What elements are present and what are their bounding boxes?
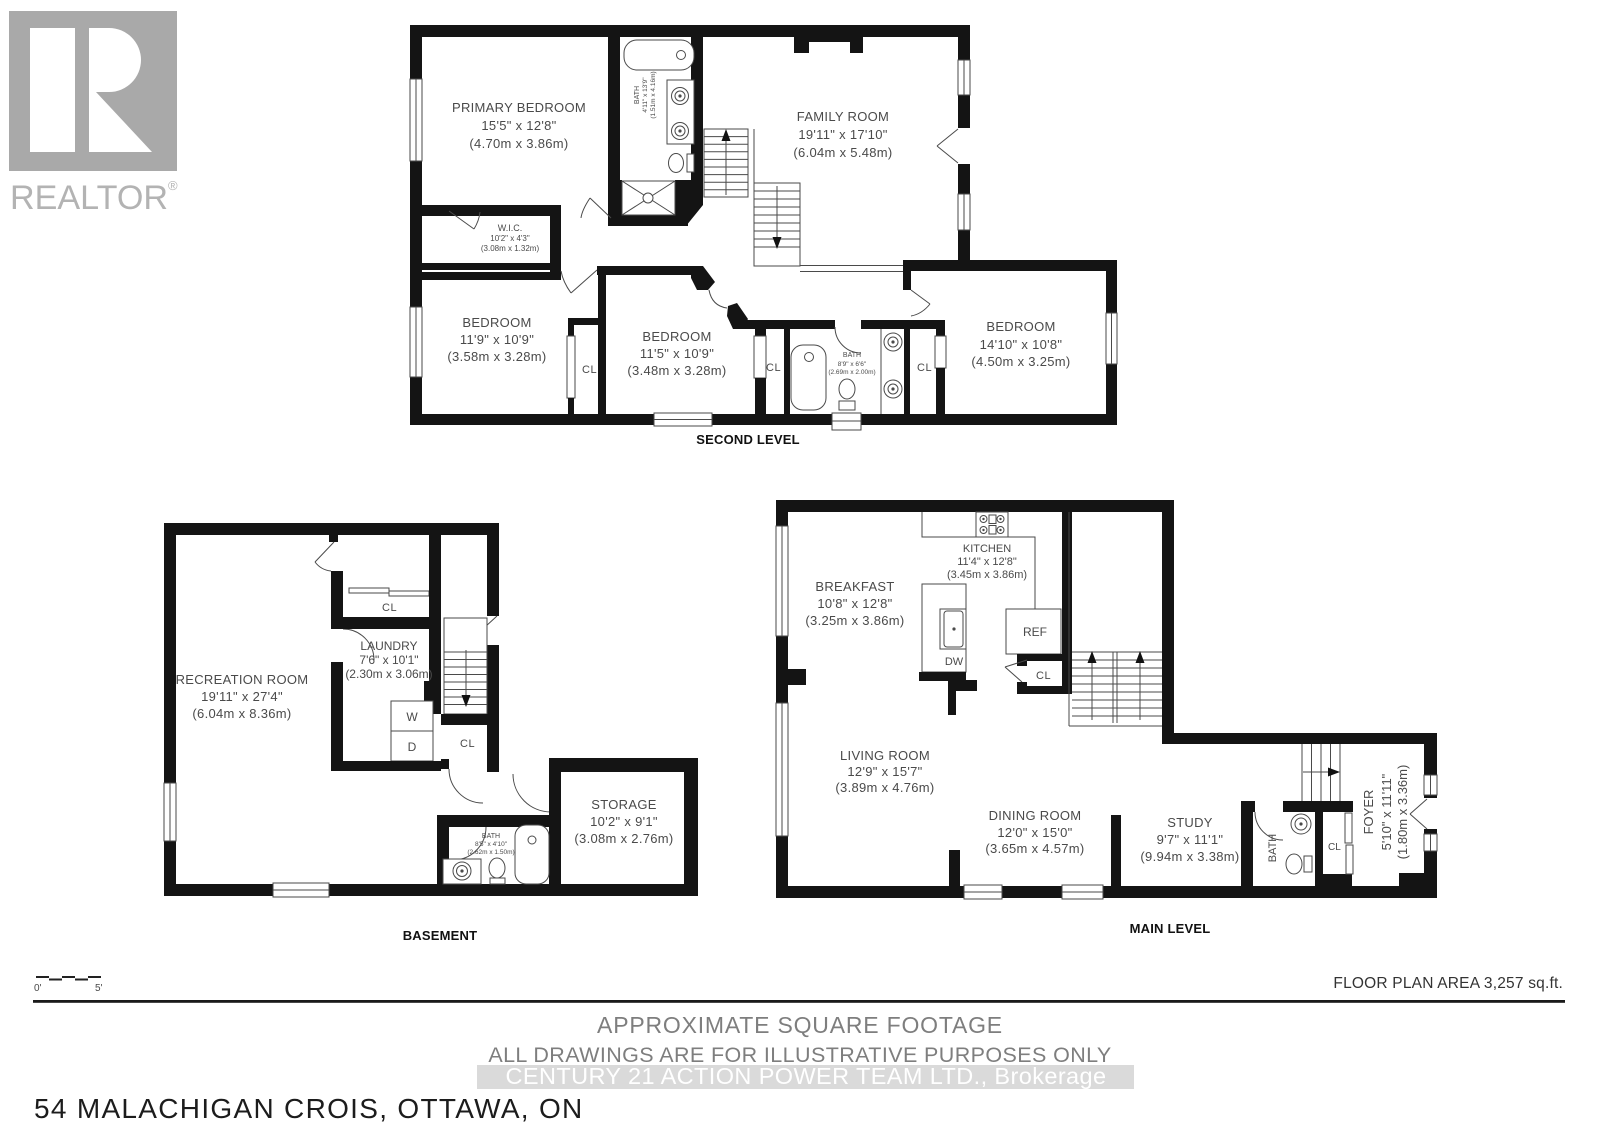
svg-text:10'2" x 9'1": 10'2" x 9'1" <box>590 814 658 829</box>
svg-text:8'5" x 4'10": 8'5" x 4'10" <box>475 841 508 848</box>
svg-text:(2.69m x 2.00m): (2.69m x 2.00m) <box>828 369 875 376</box>
svg-text:BEDROOM: BEDROOM <box>986 319 1055 334</box>
svg-text:CL: CL <box>582 364 597 376</box>
svg-text:®: ® <box>168 178 178 193</box>
svg-text:BATH: BATH <box>843 352 861 359</box>
svg-text:REALTOR: REALTOR <box>10 179 168 217</box>
svg-text:15'5" x 12'8": 15'5" x 12'8" <box>481 118 556 133</box>
svg-text:STORAGE: STORAGE <box>591 797 656 812</box>
svg-text:9'7" x 11'1": 9'7" x 11'1" <box>1157 832 1224 847</box>
svg-text:DW: DW <box>945 656 964 668</box>
svg-text:19'11" x 27'4": 19'11" x 27'4" <box>201 689 283 704</box>
svg-text:12'9" x 15'7": 12'9" x 15'7" <box>847 764 922 779</box>
svg-text:5'10" x 11'11": 5'10" x 11'11" <box>1379 773 1394 850</box>
svg-text:LAUNDRY: LAUNDRY <box>360 639 417 653</box>
svg-text:54 MALACHIGAN CROIS, OTTAWA, O: 54 MALACHIGAN CROIS, OTTAWA, ON <box>34 1093 584 1124</box>
svg-text:(3.48m x 3.28m): (3.48m x 3.28m) <box>627 363 726 378</box>
svg-text:14'10" x 10'8": 14'10" x 10'8" <box>980 337 1063 352</box>
svg-text:CL: CL <box>1328 842 1341 853</box>
svg-text:(2.30m x 3.06m): (2.30m x 3.06m) <box>345 667 432 681</box>
svg-text:BATH: BATH <box>634 86 641 104</box>
svg-text:8'9" x 6'6": 8'9" x 6'6" <box>838 361 867 368</box>
svg-text:(3.25m x 3.86m): (3.25m x 3.86m) <box>805 613 904 628</box>
svg-text:CL: CL <box>1036 670 1051 682</box>
svg-text:(6.04m x 5.48m): (6.04m x 5.48m) <box>793 145 892 160</box>
svg-text:(3.08m x 2.76m): (3.08m x 2.76m) <box>574 831 673 846</box>
svg-text:CENTURY 21 ACTION POWER TEAM L: CENTURY 21 ACTION POWER TEAM LTD., Broke… <box>506 1063 1107 1089</box>
svg-text:W: W <box>406 710 418 724</box>
svg-text:0': 0' <box>34 983 42 994</box>
svg-text:10'2" x 4'3": 10'2" x 4'3" <box>490 234 530 243</box>
svg-text:REF: REF <box>1023 625 1047 639</box>
svg-text:BEDROOM: BEDROOM <box>462 315 531 330</box>
svg-text:RECREATION ROOM: RECREATION ROOM <box>176 672 309 687</box>
svg-text:BREAKFAST: BREAKFAST <box>815 579 894 594</box>
svg-text:(4.50m x 3.25m): (4.50m x 3.25m) <box>971 354 1070 369</box>
svg-text:W.I.C.: W.I.C. <box>498 223 523 233</box>
svg-text:4'11" x 13'9": 4'11" x 13'9" <box>642 77 649 113</box>
svg-text:MAIN LEVEL: MAIN LEVEL <box>1130 921 1211 936</box>
svg-text:KITCHEN: KITCHEN <box>963 543 1011 555</box>
svg-text:19'11" x 17'10": 19'11" x 17'10" <box>798 127 887 142</box>
svg-text:7'6" x 10'1": 7'6" x 10'1" <box>359 653 418 667</box>
svg-text:PRIMARY BEDROOM: PRIMARY BEDROOM <box>452 100 586 115</box>
svg-text:STUDY: STUDY <box>1167 815 1213 830</box>
svg-text:CL: CL <box>766 362 781 374</box>
svg-text:(1.80m x 3.36m): (1.80m x 3.36m) <box>1395 765 1410 860</box>
svg-text:(3.45m x 3.86m): (3.45m x 3.86m) <box>947 569 1027 581</box>
svg-text:(1.51m x 4.16m): (1.51m x 4.16m) <box>650 71 657 118</box>
svg-text:(3.58m x 3.28m): (3.58m x 3.28m) <box>447 349 546 364</box>
svg-text:(3.65m x 4.57m): (3.65m x 4.57m) <box>985 841 1084 856</box>
svg-text:(3.08m x 1.32m): (3.08m x 1.32m) <box>481 244 540 253</box>
svg-text:CL: CL <box>917 362 932 374</box>
svg-text:11'4" x 12'8": 11'4" x 12'8" <box>957 556 1017 568</box>
svg-text:BEDROOM: BEDROOM <box>642 329 711 344</box>
svg-text:APPROXIMATE SQUARE FOOTAGE: APPROXIMATE SQUARE FOOTAGE <box>597 1012 1003 1038</box>
svg-text:11'5" x 10'9": 11'5" x 10'9" <box>640 346 714 361</box>
svg-text:(3.89m x 4.76m): (3.89m x 4.76m) <box>835 780 934 795</box>
svg-text:DINING ROOM: DINING ROOM <box>989 808 1082 823</box>
svg-text:(6.04m x 8.36m): (6.04m x 8.36m) <box>192 706 291 721</box>
svg-text:FOYER: FOYER <box>1361 790 1376 835</box>
svg-text:5': 5' <box>95 983 103 994</box>
svg-text:FAMILY ROOM: FAMILY ROOM <box>797 109 889 124</box>
svg-text:SECOND LEVEL: SECOND LEVEL <box>696 432 800 447</box>
svg-text:CL: CL <box>382 602 397 614</box>
svg-text:(2.62m x 1.50m): (2.62m x 1.50m) <box>467 849 514 856</box>
svg-text:(4.70m x 3.86m): (4.70m x 3.86m) <box>469 136 568 151</box>
svg-text:BASEMENT: BASEMENT <box>403 928 478 943</box>
svg-text:(9.94m x 3.38m): (9.94m x 3.38m) <box>1140 849 1239 864</box>
svg-text:BATH: BATH <box>1267 834 1279 863</box>
svg-text:CL: CL <box>460 738 475 750</box>
svg-text:D: D <box>408 740 417 754</box>
svg-text:10'8" x 12'8": 10'8" x 12'8" <box>817 596 892 611</box>
svg-text:12'0" x 15'0": 12'0" x 15'0" <box>997 825 1072 840</box>
svg-text:LIVING ROOM: LIVING ROOM <box>840 748 930 763</box>
svg-text:FLOOR PLAN AREA 3,257 sq.ft.: FLOOR PLAN AREA 3,257 sq.ft. <box>1333 975 1563 992</box>
svg-text:11'9" x 10'9": 11'9" x 10'9" <box>460 332 534 347</box>
svg-text:BATH: BATH <box>482 833 500 840</box>
